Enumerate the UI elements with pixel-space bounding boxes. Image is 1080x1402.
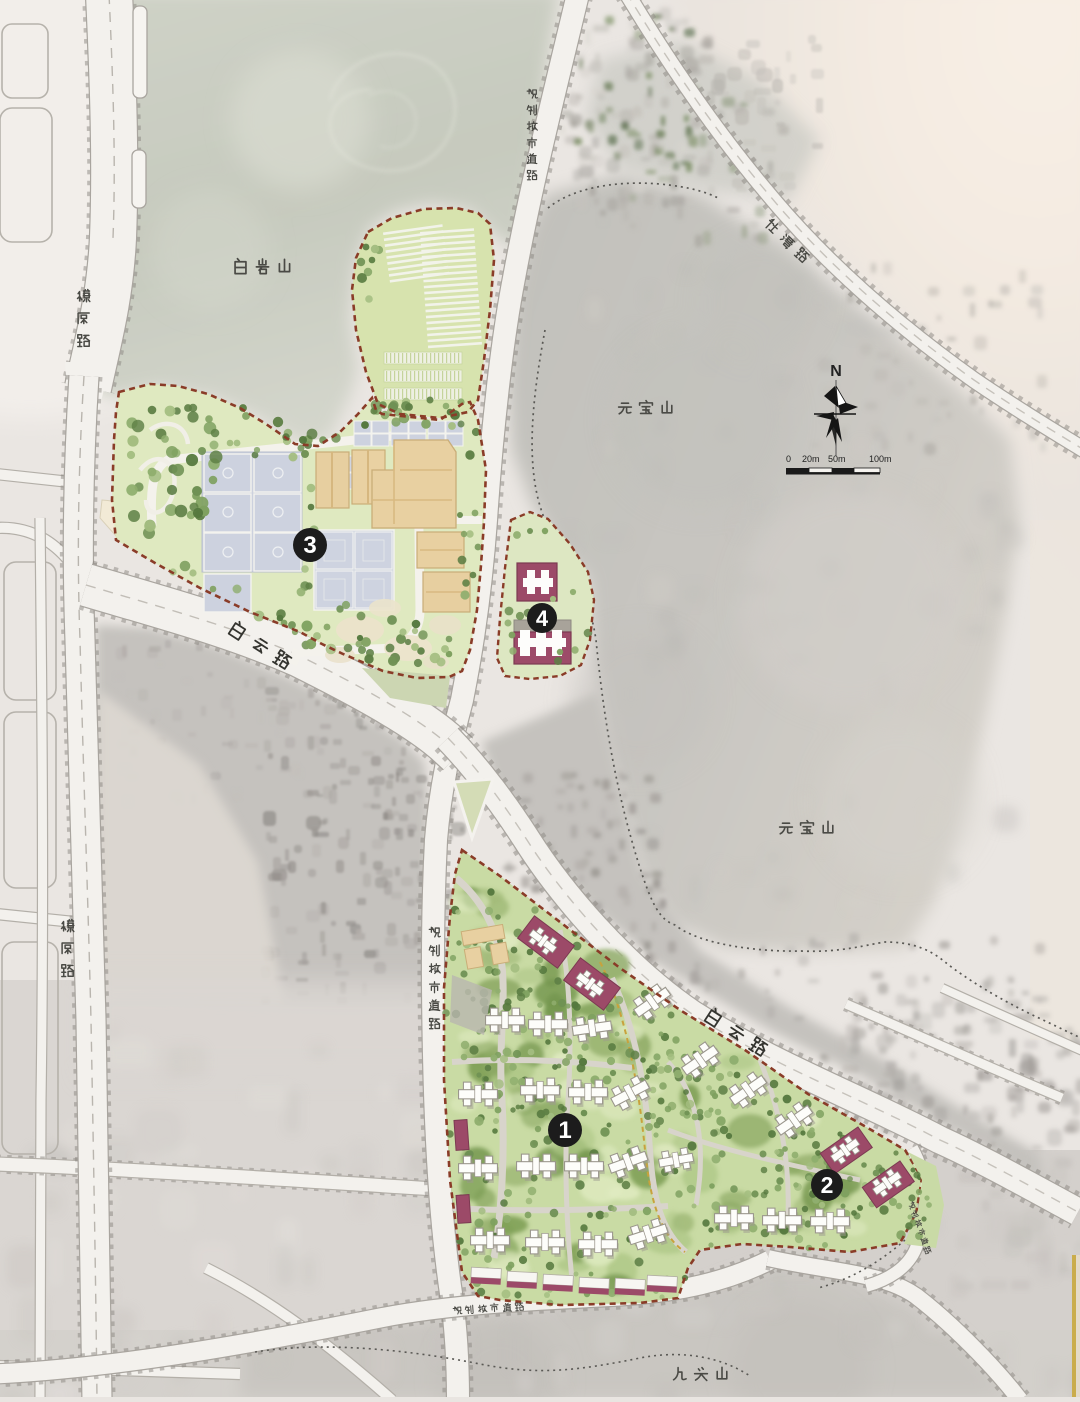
svg-text:4: 4 <box>536 606 549 631</box>
svg-text:100m: 100m <box>869 454 892 464</box>
svg-text:N: N <box>830 363 842 380</box>
svg-text:2: 2 <box>821 1172 834 1198</box>
svg-text:20m: 20m <box>802 454 820 464</box>
svg-text:50m: 50m <box>828 454 846 464</box>
svg-text:0: 0 <box>786 454 791 464</box>
svg-text:1: 1 <box>558 1117 571 1144</box>
svg-text:3: 3 <box>303 532 316 559</box>
